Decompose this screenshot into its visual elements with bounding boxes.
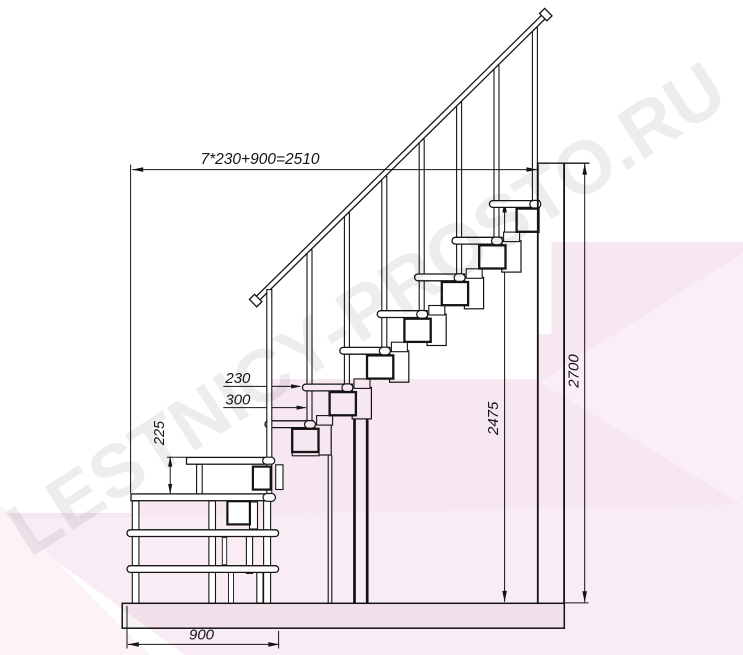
svg-text:LESTNICY-PROSTO.RU: LESTNICY-PROSTO.RU (0, 46, 740, 572)
